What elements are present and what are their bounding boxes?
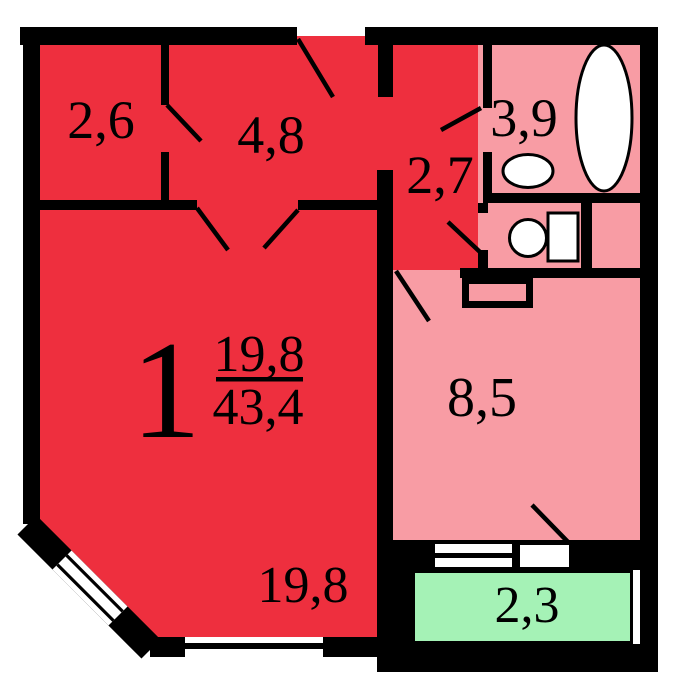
wall	[23, 27, 40, 524]
sink	[503, 155, 553, 188]
wall	[478, 203, 488, 213]
total-area-denominator: 43,4	[213, 379, 304, 436]
bathtub	[576, 45, 632, 191]
living-room-window-line	[185, 643, 323, 649]
washing-machine	[548, 213, 578, 261]
balcony-area-label: 2,3	[495, 577, 560, 634]
wall	[38, 200, 197, 210]
kitchen-area-label: 8,5	[447, 367, 517, 429]
toilet	[510, 220, 547, 257]
hallway-area-label: 4,8	[237, 105, 305, 165]
wall	[378, 27, 393, 97]
room-count-label: 1	[131, 313, 201, 468]
balcony-door-opening	[520, 545, 569, 567]
wall	[460, 268, 640, 278]
entry-opening	[297, 36, 365, 45]
floor-plan: 2,6 4,8 3,9 2,7 1 19,8 43,4 8,5 19,8 2,3	[0, 0, 700, 700]
living-room-area-label: 19,8	[258, 557, 349, 614]
wall	[20, 27, 297, 45]
wall	[391, 540, 640, 570]
vent-shaft	[466, 281, 530, 305]
kitchen-window-line	[435, 553, 512, 558]
wall	[483, 193, 640, 203]
wall	[478, 250, 488, 268]
wall	[640, 27, 658, 672]
floor-plan-page: 2,6 4,8 3,9 2,7 1 19,8 43,4 8,5 19,8 2,3	[0, 0, 700, 700]
wall	[365, 27, 640, 45]
bathroom-area-label: 3,9	[490, 88, 558, 148]
corridor-area-label: 2,7	[406, 145, 474, 205]
wall	[161, 152, 169, 202]
wall	[391, 644, 658, 672]
wall	[581, 198, 592, 268]
wall	[161, 43, 169, 105]
storage-area-label: 2,6	[67, 90, 135, 150]
wall	[298, 200, 378, 210]
living-area-numerator: 19,8	[214, 326, 305, 383]
